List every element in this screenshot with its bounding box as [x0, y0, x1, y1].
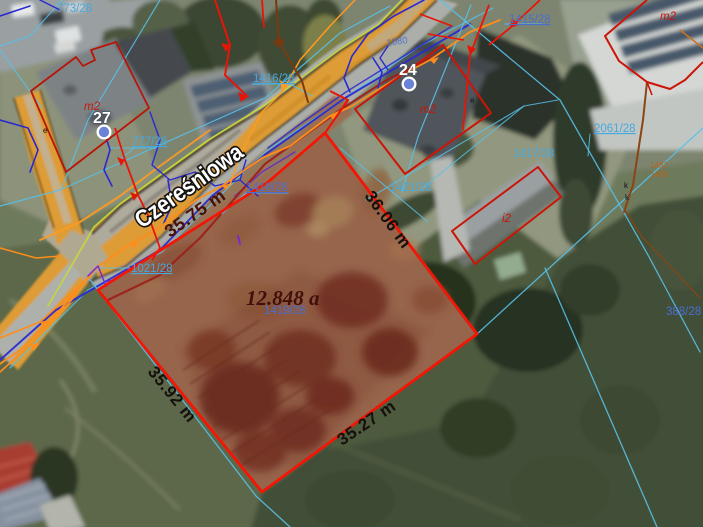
- svg-text:m2: m2: [420, 104, 437, 116]
- svg-text:e: e: [43, 126, 48, 135]
- svg-text:1418/28: 1418/28: [246, 182, 288, 194]
- svg-text:773/28: 773/28: [57, 3, 92, 15]
- svg-text:1486: 1486: [650, 170, 668, 179]
- svg-text:e: e: [470, 96, 475, 105]
- svg-text:1419/28: 1419/28: [264, 305, 306, 317]
- svg-text:1421/28: 1421/28: [390, 182, 432, 194]
- svg-text:1021/28: 1021/28: [131, 263, 173, 275]
- svg-text:777/28: 777/28: [132, 136, 167, 148]
- svg-text:2061/28: 2061/28: [594, 123, 636, 135]
- svg-text:24: 24: [399, 62, 417, 79]
- svg-text:1417/28: 1417/28: [513, 148, 555, 160]
- svg-text:388/28: 388/28: [666, 306, 701, 318]
- svg-text:m2: m2: [84, 101, 101, 113]
- svg-text:m2: m2: [660, 11, 677, 23]
- svg-text:1416/28: 1416/28: [253, 73, 295, 85]
- svg-text:i2: i2: [502, 213, 512, 225]
- svg-text:1415/28: 1415/28: [509, 14, 551, 26]
- svg-text:1487: 1487: [650, 161, 668, 170]
